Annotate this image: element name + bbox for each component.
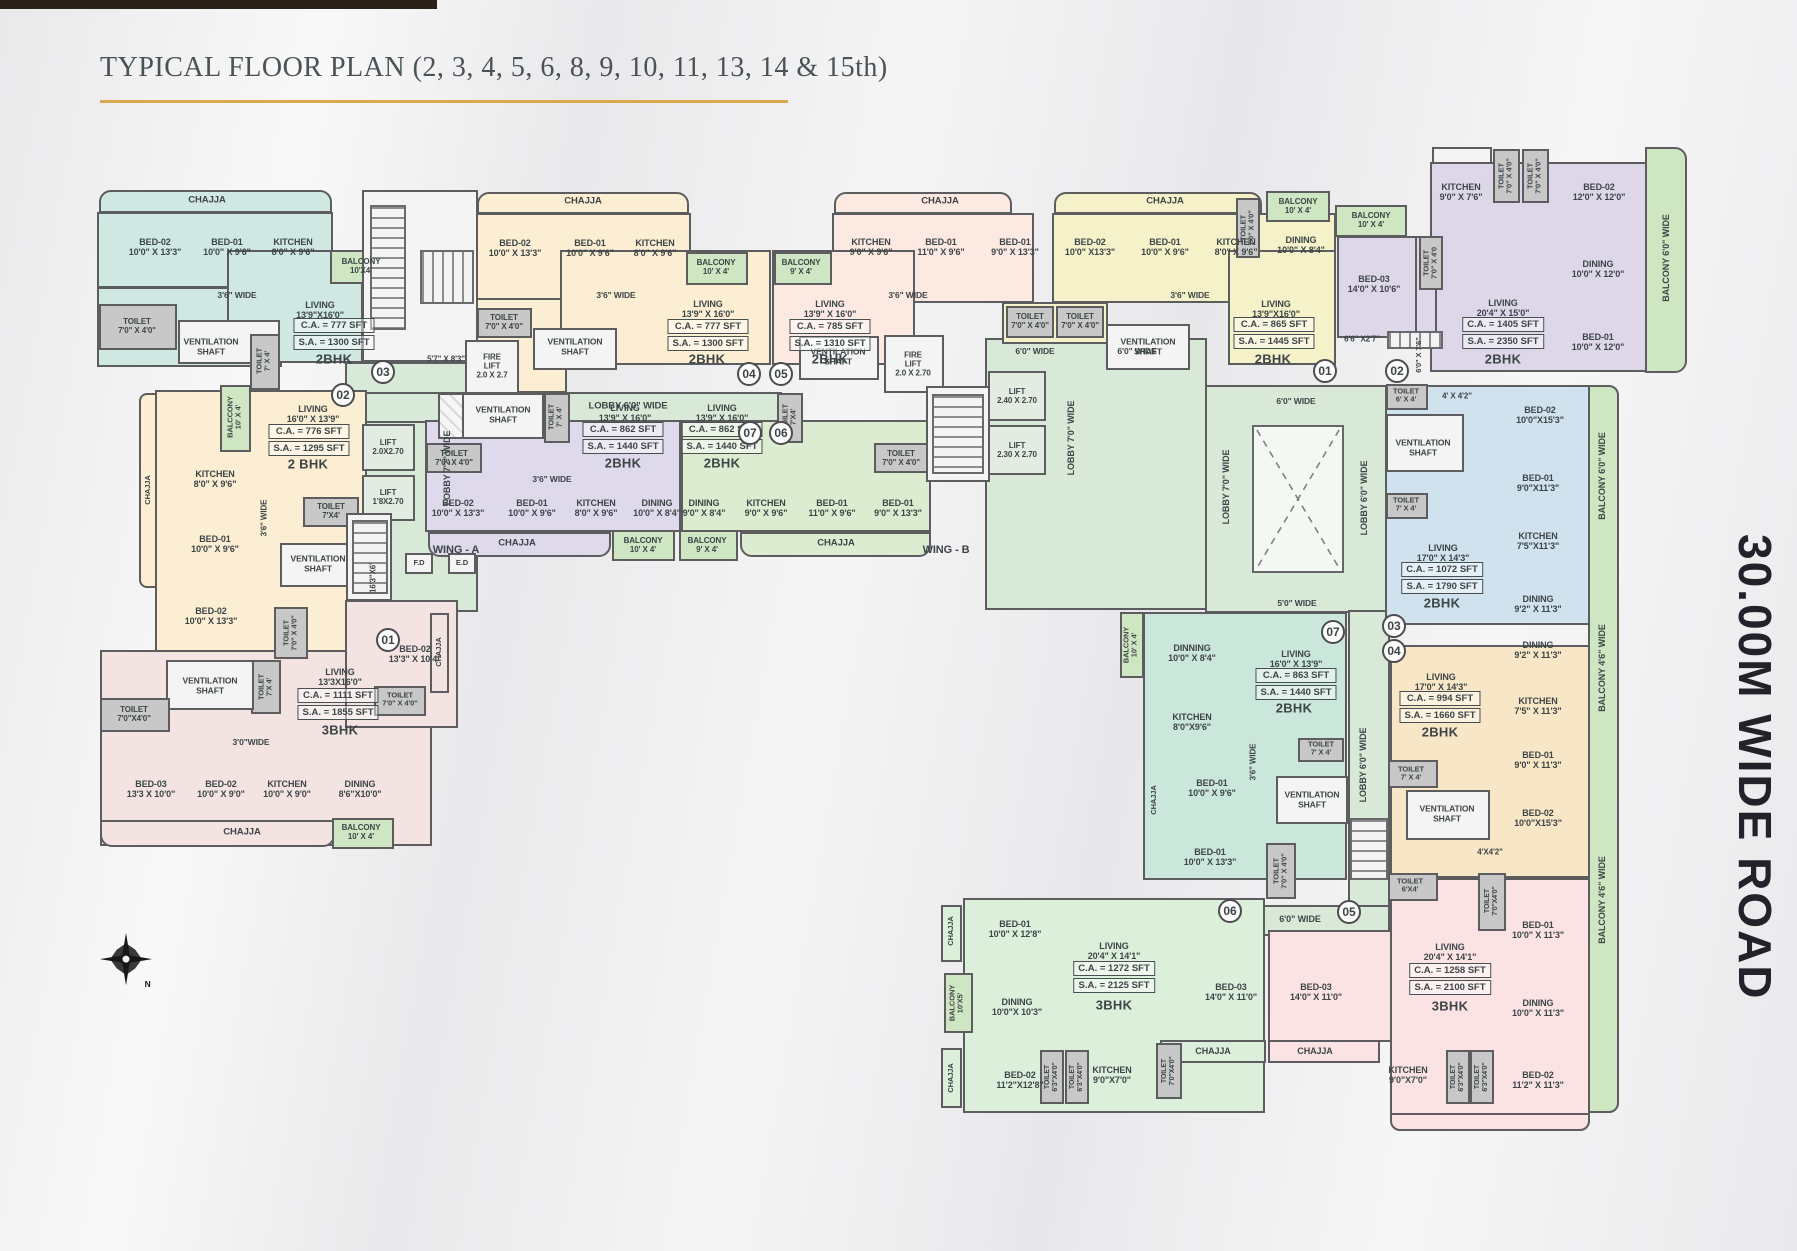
room-label: BED-02 10'0" X 13'3" [185,606,238,626]
room-label: TOILET 7' X 4' [256,348,273,374]
room-label: TOILET 7'X 4' [258,674,275,700]
room-label: 2BHK [316,353,353,368]
unit-number-badge: 04 [1382,639,1406,663]
unit-number-badge: 05 [769,362,793,386]
unitB05-bottom-strip [1390,1113,1590,1131]
area-stat-box: C.A. = 1111 SFTS.A. = 1855 SFT [297,686,378,722]
room-label: DINNING 10'0" X 8'4" [1168,643,1216,663]
room-label: TOILET 7' X 4' [1308,741,1334,758]
room-label: KITCHEN 9'0" X 9'6" [850,237,893,257]
unit-number-badge: 07 [1321,620,1345,644]
carpet-area: C.A. = 785 SFT [789,319,870,334]
room-label: BALCONY 10' X 4' [1123,627,1140,663]
room-label: VENTILATION SHAFT [291,554,346,573]
room-label: BED-01 10'0" X 13'3" [1184,847,1237,867]
saleable-area: S.A. = 1790 SFT [1401,579,1483,594]
room-label: BED-02 10'0" X 13'3" [432,498,485,518]
area-stat-box: C.A. = 1405 SFTS.A. = 2350 SFT [1462,315,1544,351]
saleable-area: S.A. = 1440 SFT [582,439,663,454]
room-label: TOILET 7'0" X 4'0" [283,615,300,650]
room-label: 2BHK [1255,353,1292,368]
room-label: BED-02 11'2"X12'8" [996,1070,1043,1090]
room-label: 3'6" WIDE [1248,744,1257,781]
room-label: DINING 10'0" X 12'0" [1572,259,1625,279]
room-label: 3'6" WIDE [217,291,256,301]
unit-number-badge: 01 [1313,359,1337,383]
room-label: TOILET 7'0" X 4'0 [1423,247,1440,279]
room-label: CHAJJA [1195,1046,1230,1056]
area-stat-box: C.A. = 1072 SFTS.A. = 1790 SFT [1401,560,1483,596]
room-label: TOILET 7'0" X 4'0" [1011,312,1049,330]
room-label: 2BHK [689,353,726,368]
room-label: F.D [414,559,425,567]
room-label: 5'0" WIDE [1277,599,1316,609]
room-label: TOILET 7'X4' [317,502,345,520]
room-label: BED-02 10'0" X 13'3" [129,237,182,257]
room-label: BED-01 10'0" X 9'6" [1188,778,1236,798]
room-label: DINING 9'2" X 11'3" [1514,594,1561,614]
room-label: BALCCONY 10' X 4' [227,396,244,438]
room-label: BALCONY 6'0" WIDE [1597,432,1607,520]
unit-number-badge: 02 [331,383,355,407]
room-label: CHAJJA [947,1063,955,1092]
floor-plan-canvas: CHAJJABED-02 10'0" X 13'3"BED-01 10'0" X… [0,0,1797,1251]
unit-number-badge: 01 [376,628,400,652]
room-label: TOILET 6'3"X4'0" [1044,1062,1060,1091]
room-label: 2BHK [1424,597,1461,612]
room-label: CHAJJA [947,916,955,945]
room-label: CHAJJA [498,539,535,550]
svg-text:N: N [145,979,151,989]
room-label: FIRE LIFT 2.0 X 2.7 [476,352,507,379]
room-label: 2 BHK [288,458,329,473]
room-label: LIFT 2.30 X 2.70 [997,441,1037,459]
room-label: BED-02 10'0"X15'3" [1516,405,1564,425]
room-label: BALCONY 10' X 4' [342,823,381,841]
room-label: VENTILATION SHAFT [548,337,603,356]
room-label: VENTILATION SHAFT [1396,438,1451,457]
compass-rose-icon: N [98,931,154,989]
saleable-area: S.A. = 1310 SFT [789,336,870,351]
room-label: BED-01 9'0" X 13'3" [874,498,922,518]
room-label: CHAJJA [817,539,854,550]
room-label: CHAJJA [144,475,152,504]
room-label: BED-01 10'0" X 9'6" [203,237,251,257]
room-label: BED-02 10'0" X 9'0" [197,779,245,799]
room-label: 4'X4'2" [1477,847,1503,856]
room-label: BALCONY 10'X4' [342,257,381,275]
road-label: 30.00M WIDE ROAD [1712,512,1782,1022]
room-label: KITCHEN 9'0" X 9'6" [745,498,788,518]
room-label: 3'6" WIDE [259,500,268,537]
room-label: BED-01 10'0" X 9'6" [566,238,614,258]
room-label: CHAJJA [1297,1046,1332,1056]
area-stat-box: C.A. = 777 SFTS.A. = 1300 SFT [293,316,374,352]
room-label: TOILET 7' X 4' [1393,497,1419,514]
room-label: DINING 10'0" X 11'3" [1512,998,1564,1018]
area-stat-box: C.A. = 777 SFTS.A. = 1300 SFT [667,317,748,353]
saleable-area: S.A. = 2350 SFT [1462,334,1544,349]
area-stat-box: C.A. = 1258 SFTS.A. = 2100 SFT [1409,961,1491,997]
stairs [1350,818,1388,880]
room-label: BED-01 9'0" X 11'3" [1514,750,1561,770]
room-label: CHAJJA [188,196,225,207]
room-label: 16'3"X6' [368,563,377,593]
room-label: VENTILATION SHAFT [184,337,239,356]
room-label: CHAJJA [564,197,601,208]
room-label: E.D [456,559,468,567]
room-label: KITCHEN 8'0" X 9'6" [634,238,677,258]
room-label: BED-01 10'0" X 9'6" [1141,237,1189,257]
room-label: TOILET 7'0" X 4'0" [485,313,523,331]
room-label: 2BHK [1485,353,1522,368]
room-label: TOILET 7'0"X4'0" [1484,886,1500,915]
room-label: TOILET 7'0" X 4'0" [118,317,156,335]
room-label: BALCONY 10' X 4' [624,536,663,554]
room-label: VENTILATION SHAFT [476,405,531,424]
room-label: DINING 8'6"X10'0" [339,779,382,799]
room-label: TOILET 7' X 4' [548,404,565,430]
room-label: BED-01 10'0" X 12'0" [1572,332,1625,352]
unit-number-badge: 07 [738,421,762,445]
room-label: TOILET 7'0" X 4'0" [882,449,920,467]
room-label: LIVING 20'4" X 14'1" [1424,942,1477,962]
area-stat-box: C.A. = 865 SFTS.A. = 1445 SFT [1233,315,1314,351]
room-label: 3BHK [1432,1000,1469,1015]
room-label: DINING 9'0" X 8'4" [683,498,726,518]
room-label: TOILET 7'0" X 4'0" [382,692,417,709]
room-label: BED-03 13'3 X 10'0" [127,779,175,799]
carpet-area: C.A. = 776 SFT [268,424,349,439]
room-label: BED-02 10'0" X 13'3" [489,238,542,258]
room-label: LOBBY 7'0" WIDE [1221,450,1231,525]
room-label: BED-01 10'0" X 9'6" [191,534,239,554]
room-label: KITCHEN 8'0" X 9'6" [575,498,618,518]
room-label: DINING 10'0" X 8'4" [633,498,681,518]
room-label: BED-01 11'0" X 9'6" [917,237,964,257]
room-label: BED-03 14'0" X 11'0" [1290,982,1342,1002]
room-label: LIFT 2.40 X 2.70 [997,387,1037,405]
unit-number-badge: 06 [1218,899,1242,923]
saleable-area: S.A. = 1445 SFT [1233,334,1314,349]
unit-number-badge: 06 [769,421,793,445]
carpet-area: C.A. = 1258 SFT [1409,963,1491,978]
room-label: 2BHK [1276,702,1313,717]
room-label: 5'7" X 8'3" [427,354,465,363]
room-label: 3'6" WIDE [888,291,927,301]
saleable-area: S.A. = 1300 SFT [667,336,748,351]
area-stat-box: C.A. = 776 SFTS.A. = 1295 SFT [268,422,349,458]
area-stat-box: C.A. = 994 SFTS.A. = 1660 SFT [1399,689,1480,725]
room-label: TOILET 6'X4' [1397,878,1423,895]
room-label: BED-02 10'0"X15'3" [1514,808,1562,828]
room-label: DINING 10'0" X 8'4" [1277,235,1325,255]
room-label: WING - B [923,544,970,556]
room-label: 6'0" WIDE [1015,347,1054,357]
room-label: TOILET 6'3"X4'0" [1450,1062,1466,1091]
unit-number-badge: 04 [737,362,761,386]
room-label: 3'6" WIDE [1170,291,1209,301]
carpet-area: C.A. = 1405 SFT [1462,317,1544,332]
carpet-area: C.A. = 1072 SFT [1401,562,1483,577]
carpet-area: C.A. = 777 SFT [667,319,748,334]
room-label: BED-01 11'0" X 9'6" [808,498,855,518]
carpet-area: C.A. = 865 SFT [1233,317,1314,332]
carpet-area: C.A. = 863 SFT [1255,668,1336,683]
room-label: TOILET 7'0" X 4'0" [435,449,473,467]
room-label: TOILET 7'0" X 4'0" [1240,210,1257,245]
room-label: CHAJJA [921,197,958,208]
room-label: BALCONY 9' X 4' [782,258,821,276]
room-label: CHAJJA [1146,197,1183,208]
saleable-area: S.A. = 1855 SFT [297,705,378,720]
room-label: BALCONY 4'6" WIDE [1597,624,1607,712]
carpet-area: C.A. = 1111 SFT [297,688,378,703]
room-label: TOILET 7'0"X4'0" [1161,1056,1177,1085]
room-label: KITCHEN 10'0" X 9'0" [263,779,311,799]
room-label: BED-02 11'2" X 11'3" [1512,1070,1564,1090]
room-label: LIFT 2.0X2.70 [372,438,403,456]
room-label: BED-01 10'0" X 12'8" [989,919,1042,939]
stairs [420,250,474,304]
room-label: LOBBY 6'0" WIDE [1358,728,1368,803]
area-stat-box: C.A. = 1272 SFTS.A. = 2125 SFT [1073,959,1155,995]
room-label: 2BHK [605,457,642,472]
room-label: BED-02 10'0" X13'3" [1065,237,1115,257]
carpet-area: C.A. = 994 SFT [1399,691,1480,706]
area-stat-box: C.A. = 863 SFTS.A. = 1440 SFT [1255,666,1336,702]
room-label: VENTILATION SHAFT [1420,804,1475,823]
unit01-chajja [100,820,335,847]
saleable-area: S.A. = 2100 SFT [1409,980,1491,995]
room-label: 6'0" X 7'6" [1415,337,1423,372]
room-label: TOILET 7'0" X 4'0" [1273,853,1290,888]
room-label: BALCONY 10' X 4' [697,258,736,276]
room-label: 2BHK [704,457,741,472]
room-label: KITCHEN 9'0"X7'0" [1388,1065,1427,1085]
room-label: TOILET 7' X 4' [1398,766,1424,783]
saleable-area: S.A. = 1300 SFT [293,335,374,350]
area-stat-box: C.A. = 862 SFTS.A. = 1440 SFT [582,420,663,456]
room-label: VENTILATION SHAFT [1285,790,1340,809]
saleable-area: S.A. = 2125 SFT [1073,978,1155,993]
room-label: BALCONY 4'6" WIDE [1597,856,1607,944]
room-label: BED-02 12'0" X 12'0" [1573,182,1626,202]
saleable-area: S.A. = 1660 SFT [1399,708,1480,723]
room-label: KITCHEN 7'5" X 11'3" [1514,696,1561,716]
room-label: VENTILATION SHAFT [183,676,238,695]
unit-number-badge: 05 [1337,900,1361,924]
room-label: CHAJJA [223,828,260,839]
room-label: TOILET 6' X 4' [1393,388,1419,405]
room-label: KITCHEN 8'0" X 9'6" [272,237,315,257]
area-stat-box: C.A. = 785 SFTS.A. = 1310 SFT [789,317,870,353]
room-label: 6'0" WIDE [1117,347,1156,357]
room-label: WING - A [433,544,479,556]
room-label: 3'6" WIDE [532,475,571,485]
room-label: 6'6" X2'7" [1344,334,1380,343]
room-label: BED-01 9'0"X11'3" [1517,473,1559,493]
room-label: 3BHK [1096,999,1133,1014]
room-label: BALCONY 6'0" WIDE [1661,214,1671,302]
room-label: CHAJJA [435,637,443,666]
room-label: LOBBY 7'2" WIDE [442,431,452,506]
room-label: 3'6" WIDE [596,291,635,301]
room-label: BED-01 10'0" X 11'3" [1512,920,1564,940]
room-label: DINING 10'0"X 10'3" [992,997,1042,1017]
refuge-cross-box [1252,425,1344,573]
room-label: 6'0" WIDE [1279,914,1321,924]
room-label: BALCONY 10' X 4' [1279,197,1318,215]
unit-number-badge: 02 [1385,359,1409,383]
room-label: 6'0" WIDE [1276,397,1315,407]
room-label: KITCHEN 8'0" X 9'6" [194,469,237,489]
room-label: 4' X 4'2" [1442,391,1472,400]
room-label: BALCONY 10'X5' [949,985,966,1021]
saleable-area: S.A. = 1440 SFT [1255,685,1336,700]
room-label: 3'0"WIDE [233,738,270,748]
room-label: BED-01 10'0" X 9'6" [508,498,556,518]
room-label: TOILET 6'3"X4'0" [1069,1062,1085,1091]
room-label: LIVING 13'3X16'0" [318,667,362,687]
room-label: 3BHK [322,724,359,739]
room-label: BALCONY 9' X 4' [688,536,727,554]
carpet-area: C.A. = 777 SFT [293,318,374,333]
room-label: LOBBY 7'0" WIDE [1066,401,1076,476]
unit-number-badge: 03 [1382,614,1406,638]
room-label: BED-03 14'0" X 10'6" [1348,274,1401,294]
room-label: BED-01 9'0" X 13'3" [991,237,1039,257]
saleable-area: S.A. = 1295 SFT [268,441,349,456]
room-label: FIRE LIFT 2.0 X 2.70 [895,350,930,377]
room-label: TOILET 7'0"X4'0" [117,705,151,723]
unit-number-badge: 03 [371,360,395,384]
room-label: BED-03 14'0" X 11'0" [1205,982,1257,1002]
room-label: TOILET 7'0" X 4'0" [1527,158,1544,193]
room-label: TOILET 7'0" X 4'0" [1498,158,1515,193]
room-label: LIFT 1'8X2.70 [373,488,404,506]
carpet-area: C.A. = 1272 SFT [1073,961,1155,976]
stairs [932,394,984,474]
room-label: 2BHK [1422,726,1459,741]
room-label: DINING 9'2" X 11'3" [1514,640,1561,660]
carpet-area: C.A. = 862 SFT [582,422,663,437]
room-label: KITCHEN 7'5"X11'3" [1517,531,1559,551]
room-label: LOBBY 6'0" WIDE [1359,461,1369,536]
room-label: BALCONY 10' X 4' [1352,211,1391,229]
room-label: KITCHEN 9'0" X 7'6" [1440,182,1483,202]
room-label: CHAJJA [1150,785,1158,814]
room-label: TOILET 6'3"X4'0" [1474,1062,1490,1091]
room-label: TOILET 7'0" X 4'0" [1061,312,1099,330]
room-label: KITCHEN 8'0"X9'6" [1172,712,1211,732]
room-label: KITCHEN 9'0"X7'0" [1092,1065,1131,1085]
